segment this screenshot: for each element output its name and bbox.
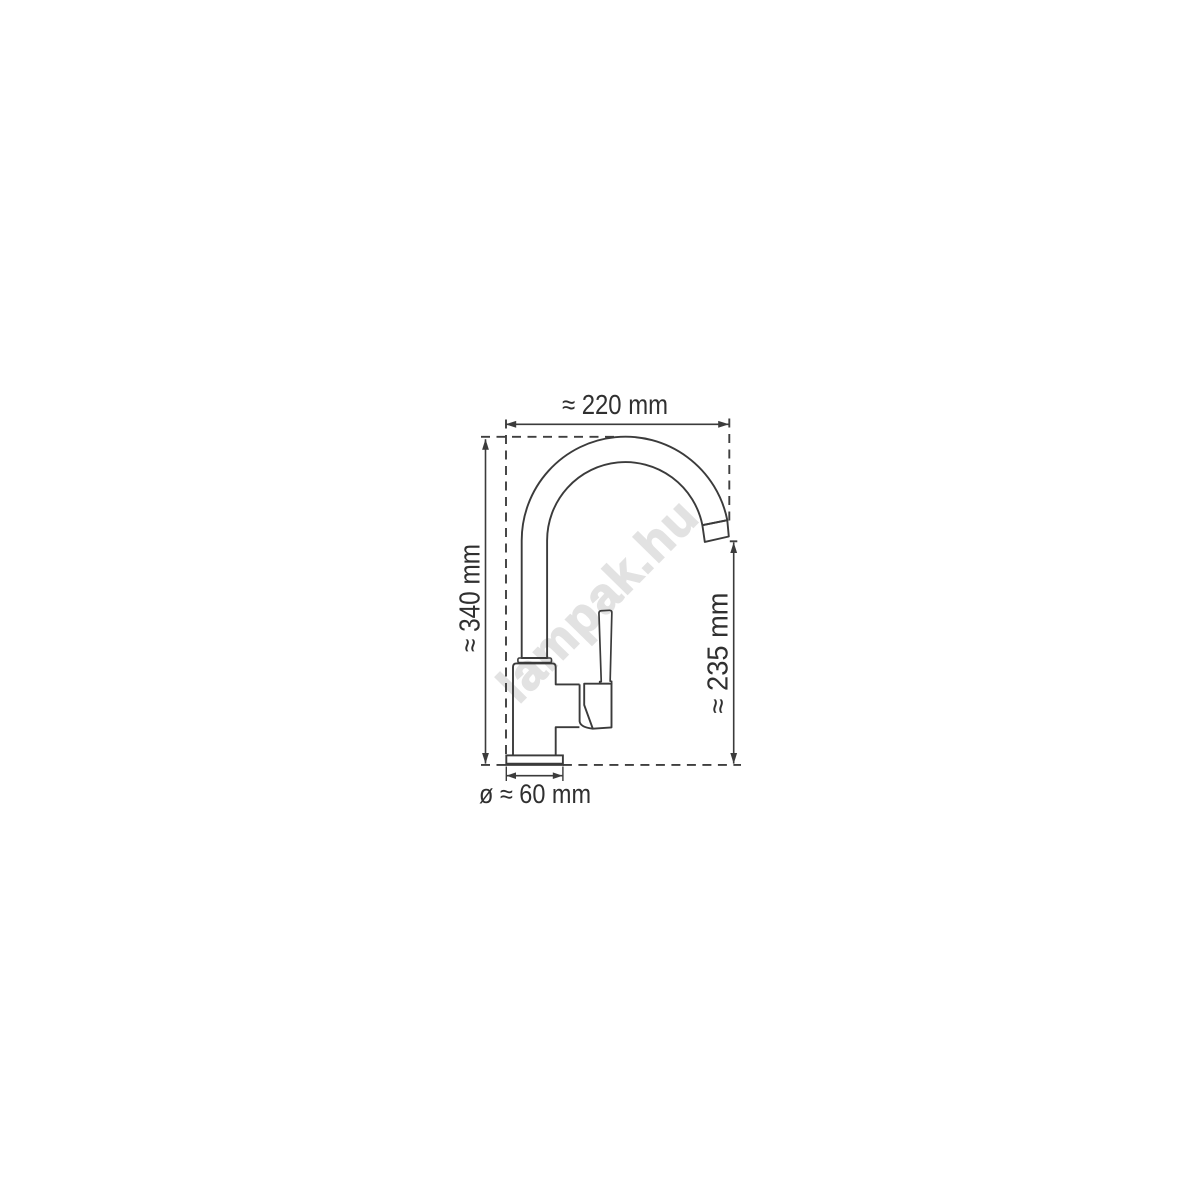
svg-text:≈ 220 mm: ≈ 220 mm [562, 389, 668, 420]
svg-text:≈ 340 mm: ≈ 340 mm [454, 544, 486, 652]
svg-text:ø ≈ 60 mm: ø ≈ 60 mm [479, 779, 591, 809]
svg-text:≈ 235 mm: ≈ 235 mm [702, 593, 734, 714]
